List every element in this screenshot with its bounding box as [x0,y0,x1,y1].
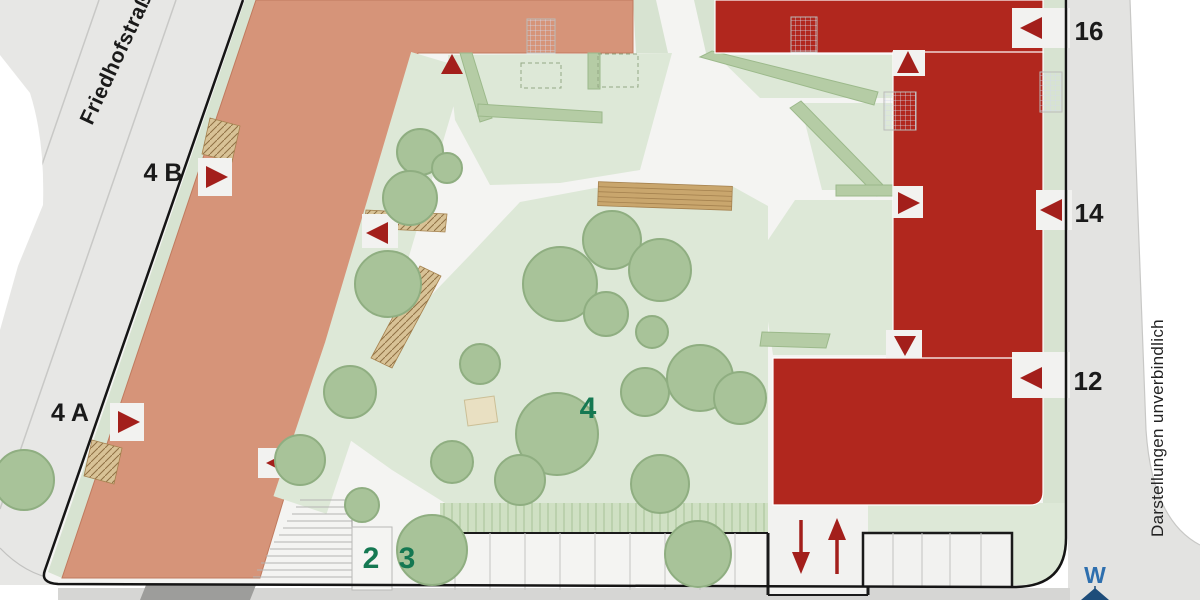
entrance-east-bottom [886,330,922,358]
hedge [760,332,830,348]
skylight-glass [791,17,817,52]
area-label-2: 2 [363,542,380,575]
entrance-4b [198,158,232,196]
garage-ramp [768,500,868,595]
tree [621,368,669,416]
unit-label-16: 16 [1075,16,1104,46]
parking-row-east [863,533,1012,587]
entrance-16 [1012,8,1070,48]
area-label-3: 3 [399,542,416,575]
tree [714,372,766,424]
hedge-hatch [440,503,782,532]
tree [629,239,691,301]
tree [345,488,379,522]
entrance-label-4b: 4 B [144,159,183,187]
tree [324,366,376,418]
ramp-surface [768,500,868,595]
site-plan-drawing: Friedhofstraße 4 B 4 A 16 14 12 2 3 4 Da… [0,0,1200,600]
unit-label-12: 12 [1074,366,1103,396]
tree [495,455,545,505]
canopy-glass [884,92,916,130]
disclaimer-label: Darstellungen unverbindlich [1148,319,1167,537]
compass-west-label: W [1084,562,1106,588]
entrance-label-4a: 4 A [51,399,89,427]
tree [355,251,421,317]
building-east-south-block [773,358,1043,505]
street-east [1068,0,1200,600]
skylight-glass [527,19,555,53]
area-label-4: 4 [580,392,597,425]
tree [432,153,462,183]
building-east-north-wing [715,0,1043,53]
tree [383,171,437,225]
entrance-east-mid [893,186,923,218]
tree [665,521,731,587]
tree [0,450,54,510]
unit-label-14: 14 [1075,198,1104,228]
entrance-east-top [893,50,925,76]
tree [431,441,473,483]
tree [636,316,668,348]
canopy-glass [1040,72,1062,112]
tree [584,292,628,336]
entrance-4a [110,403,144,441]
tree [631,455,689,513]
entrance-12 [1012,352,1070,398]
site-plan: Friedhofstraße 4 B 4 A 16 14 12 2 3 4 Da… [0,0,1200,600]
hedge [836,185,896,196]
sandbox [464,396,497,426]
tree [275,435,325,485]
tree [460,344,500,384]
